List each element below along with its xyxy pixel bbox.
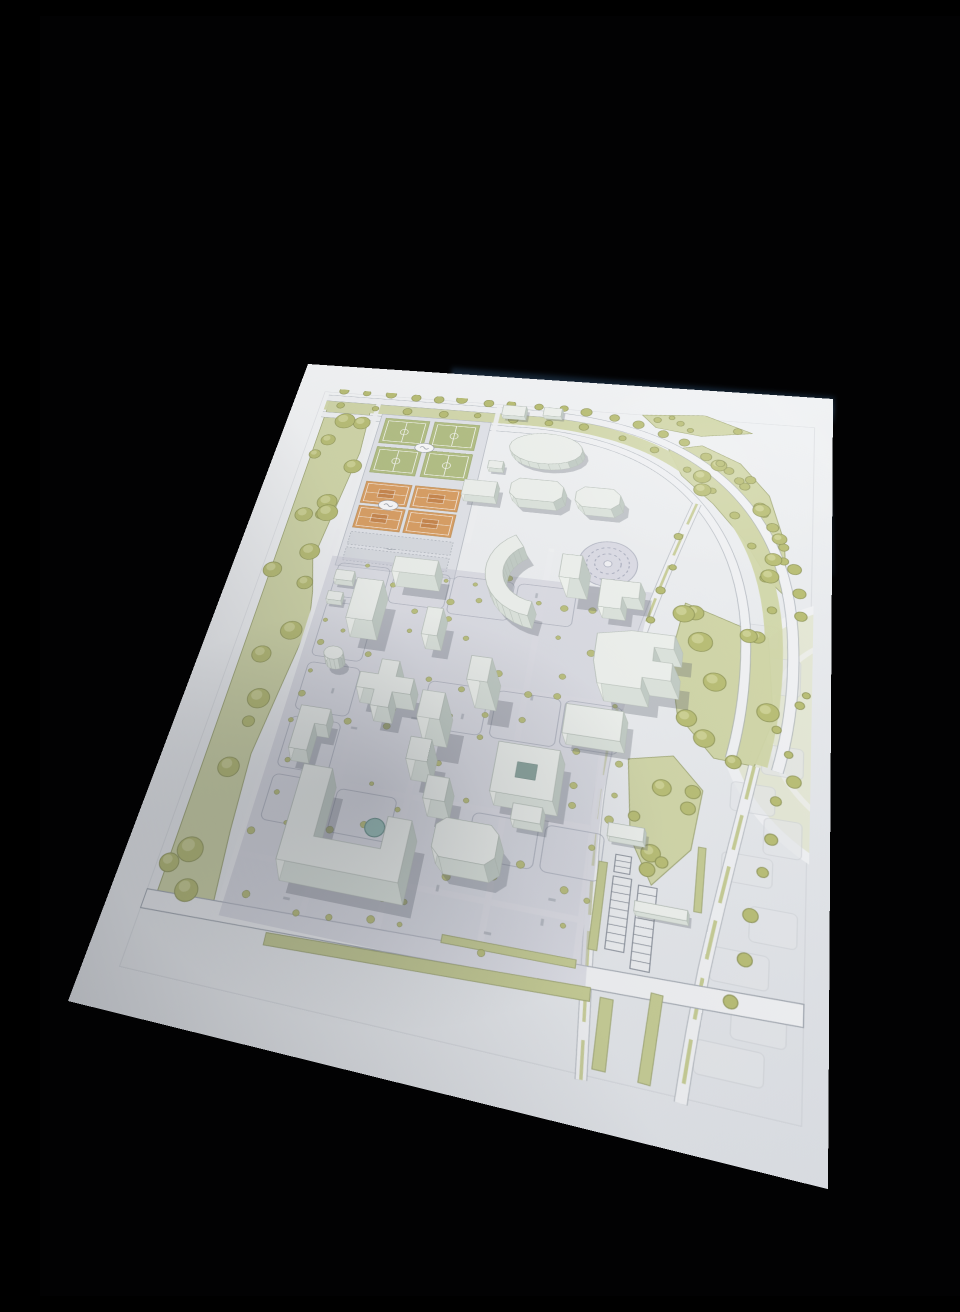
site-plan-drawing	[68, 364, 833, 1189]
masterplan-sheet	[68, 364, 833, 1189]
model-photo: architectural masterplan scale model wit…	[40, 16, 960, 1296]
photo-shading	[68, 364, 833, 1189]
